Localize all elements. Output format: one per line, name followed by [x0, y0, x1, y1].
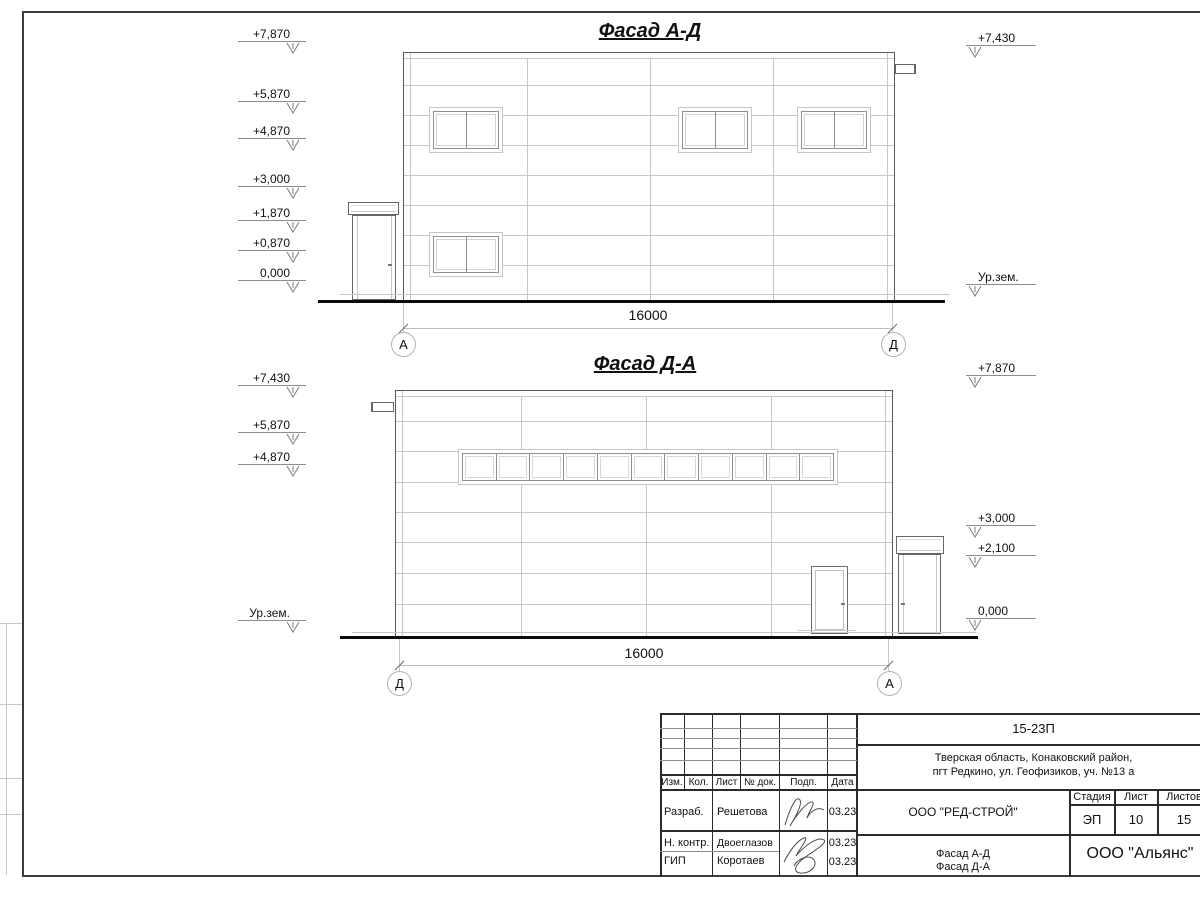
plinth-line [340, 294, 950, 295]
elevation-arrow-icon [286, 621, 300, 633]
window-glass [634, 456, 663, 478]
dimension-value: 16000 [596, 645, 692, 661]
window [429, 107, 503, 153]
window-glass [600, 456, 629, 478]
window-pane [799, 454, 833, 480]
stamp-stage-label: Стадия [1070, 791, 1114, 804]
stamp-sheet-value: 10 [1115, 813, 1157, 826]
dimension-line [403, 328, 893, 329]
stamp-col-ndok: № док. [741, 776, 779, 789]
frame-top [22, 11, 1200, 13]
panel-joint [646, 396, 647, 637]
elevation-value: +5,870 [238, 418, 306, 432]
elevation-value: +1,870 [238, 206, 306, 220]
window [797, 107, 871, 153]
margin-stamp-line [6, 623, 7, 875]
window-frame [433, 111, 499, 149]
siding-line [404, 175, 894, 176]
entrance-door [811, 566, 848, 634]
stamp-line-thin [660, 851, 779, 852]
panel-joint [771, 396, 772, 637]
elevation-arrow-icon [286, 221, 300, 233]
window-pane [732, 454, 766, 480]
stamp-organization: ООО "Альянс" [1070, 847, 1200, 860]
margin-stamp-line [0, 778, 22, 779]
elevation-value: +7,870 [966, 361, 1036, 375]
stamp-line [857, 834, 1200, 836]
stamp-role: Н. контр. [664, 837, 709, 850]
ribbon-window [458, 449, 838, 485]
elevation-value: Ур.зем. [238, 606, 306, 620]
porch-canopy [348, 202, 399, 215]
elevation-value: +3,000 [238, 172, 306, 186]
window-frame [682, 111, 748, 149]
stamp-col-data: Дата [828, 776, 857, 789]
elevation-mark: +3,000 [966, 511, 1036, 538]
stamp-line-thin [660, 760, 857, 761]
elevation-arrow-icon [968, 285, 982, 297]
dimension-value: 16000 [600, 307, 696, 323]
porch [898, 554, 941, 634]
corner-trim [887, 53, 888, 300]
window-frame [433, 236, 499, 273]
corner-trim [410, 53, 411, 300]
axis-bubble-d: Д [387, 671, 412, 696]
window-glass [465, 456, 494, 478]
elevation-mark: +5,870 [238, 87, 306, 114]
stamp-date: 03.23 [828, 837, 857, 850]
window-glass [735, 456, 764, 478]
stamp-col-list: Лист [713, 776, 740, 789]
facade-da-building [395, 390, 893, 638]
window-glass [701, 456, 730, 478]
elevation-mark: 0,000 [966, 604, 1036, 631]
elevation-mark: 0,000 [238, 266, 306, 293]
elevation-value: +4,870 [238, 450, 306, 464]
plinth-line [352, 632, 976, 633]
frame-left [22, 11, 24, 877]
elevation-mark: Ур.зем. [966, 270, 1036, 297]
window-pane [463, 454, 496, 480]
elevation-value: +3,000 [966, 511, 1036, 525]
elevation-arrow-icon [968, 526, 982, 538]
window-glass [566, 456, 595, 478]
stamp-date: 03.23 [828, 856, 857, 869]
window-pane [563, 454, 597, 480]
elevation-mark: +0,870 [238, 236, 306, 263]
stamp-line [660, 713, 1200, 715]
window-pane [496, 454, 530, 480]
stamp-line [1070, 804, 1200, 806]
window-mullion [466, 237, 467, 272]
facade-da-title: Фасад Д-А [535, 353, 755, 376]
window-pane [529, 454, 563, 480]
elevation-mark: +4,870 [238, 450, 306, 477]
elevation-arrow-icon [968, 619, 982, 631]
stamp-address-line2: пгт Редкино, ул. Геофизиков, уч. №13 а [857, 766, 1200, 779]
elevation-arrow-icon [968, 556, 982, 568]
extension-line [399, 639, 400, 673]
roof-pipe [895, 64, 916, 74]
roof-pipe [371, 402, 394, 412]
stamp-line-thin [660, 748, 857, 749]
window-mullion [466, 112, 467, 148]
stamp-drawing-title-2: Фасад Д-А [857, 861, 1069, 874]
panel-joint [650, 58, 651, 300]
margin-stamp-line [0, 623, 22, 624]
stamp-sheet-label: Лист [1115, 791, 1157, 804]
stamp-line-thin [660, 728, 857, 729]
door-handle [901, 603, 905, 605]
window-pane [664, 454, 698, 480]
elevation-value: 0,000 [238, 266, 306, 280]
elevation-arrow-icon [286, 281, 300, 293]
siding-line [396, 421, 892, 422]
porch-canopy [896, 536, 944, 554]
stamp-col-podp: Подп. [780, 776, 827, 789]
corner-trim [885, 391, 886, 637]
porch-canopy-trim [351, 205, 396, 212]
elevation-value: +7,430 [966, 31, 1036, 45]
porch-canopy-trim [899, 539, 941, 551]
elevation-arrow-icon [286, 102, 300, 114]
porch-trim [357, 216, 358, 299]
signature [781, 793, 827, 829]
stamp-address-line1: Тверская область, Конаковский район, [857, 752, 1200, 765]
elevation-value: +5,870 [238, 87, 306, 101]
elevation-mark: +7,430 [966, 31, 1036, 58]
elevation-mark: +7,870 [966, 361, 1036, 388]
elevation-value: +7,430 [238, 371, 306, 385]
elevation-mark: +3,000 [238, 172, 306, 199]
porch-trim [903, 555, 904, 633]
stamp-doc-number: 15-23П [857, 722, 1200, 735]
panel-joint [521, 396, 522, 637]
stamp-role: ГИП [664, 855, 686, 868]
stamp-date: 03.23 [828, 806, 857, 819]
elevation-mark: +4,870 [238, 124, 306, 151]
stamp-line-thin [660, 738, 857, 739]
stamp-role: Разраб. [664, 806, 704, 819]
elevation-arrow-icon [286, 251, 300, 263]
extension-line [888, 639, 889, 673]
elevation-arrow-icon [286, 386, 300, 398]
elevation-value: +4,870 [238, 124, 306, 138]
corner-trim [402, 391, 403, 637]
porch-trim [936, 555, 937, 633]
elevation-mark: +2,100 [966, 541, 1036, 568]
stamp-col-izm: Изм. [660, 776, 684, 789]
window-frame [801, 111, 867, 149]
frame-bottom [22, 875, 1200, 877]
elevation-mark: Ур.зем. [238, 606, 306, 633]
axis-letter: Д [889, 337, 898, 352]
window-pane [597, 454, 631, 480]
siding-line [396, 512, 892, 513]
window-glass [499, 456, 528, 478]
window-mullion [834, 112, 835, 148]
door-leaf [815, 570, 844, 630]
elevation-arrow-icon [286, 465, 300, 477]
stamp-name: Двоеглазов [717, 837, 773, 850]
elevation-value: 0,000 [966, 604, 1036, 618]
parapet-line [404, 58, 894, 59]
facade-ad-building [403, 52, 895, 301]
elevation-arrow-icon [286, 433, 300, 445]
window-pane [698, 454, 732, 480]
window [429, 232, 503, 277]
window-pane [631, 454, 665, 480]
drawing-sheet: Фасад А-Д [0, 0, 1200, 900]
window-glass [769, 456, 798, 478]
elevation-arrow-icon [286, 187, 300, 199]
elevation-arrow-icon [286, 42, 300, 54]
panel-joint [527, 58, 528, 300]
stamp-col-kol: Кол. [685, 776, 712, 789]
stamp-name: Коротаев [717, 855, 765, 868]
margin-stamp-line [0, 814, 22, 815]
panel-joint [773, 58, 774, 300]
window-glass [667, 456, 696, 478]
elevation-mark: +5,870 [238, 418, 306, 445]
stamp-drawing-title-1: Фасад А-Д [857, 848, 1069, 861]
ground-line [318, 300, 945, 303]
stamp-sheets-value: 15 [1158, 813, 1200, 826]
elevation-value: Ур.зем. [966, 270, 1036, 284]
porch-trim [391, 216, 392, 299]
siding-line [404, 205, 894, 206]
axis-bubble-a: А [391, 332, 416, 357]
door-handle [841, 603, 845, 605]
window [678, 107, 752, 153]
stamp-stage-value: ЭП [1070, 813, 1114, 826]
elevation-arrow-icon [286, 139, 300, 151]
elevation-arrow-icon [968, 46, 982, 58]
window-pane [766, 454, 800, 480]
ground-line [340, 636, 978, 639]
door-handle [388, 264, 392, 266]
window-glass [532, 456, 561, 478]
signature [778, 832, 830, 876]
window-glass [802, 456, 831, 478]
axis-bubble-a: А [877, 671, 902, 696]
siding-line [396, 542, 892, 543]
window-mullion [715, 112, 716, 148]
axis-letter: А [885, 676, 894, 691]
elevation-mark: +7,870 [238, 27, 306, 54]
stamp-sheets-label: Листов [1158, 791, 1200, 804]
elevation-mark: +7,430 [238, 371, 306, 398]
dimension-line [399, 665, 889, 666]
axis-bubble-d: Д [881, 332, 906, 357]
axis-letter: А [399, 337, 408, 352]
axis-letter: Д [395, 676, 404, 691]
parapet-line [396, 396, 892, 397]
porch [352, 215, 396, 300]
stamp-name: Решетова [717, 806, 767, 819]
margin-stamp-line [0, 704, 22, 705]
elevation-value: +0,870 [238, 236, 306, 250]
elevation-mark: +1,870 [238, 206, 306, 233]
elevation-value: +2,100 [966, 541, 1036, 555]
elevation-value: +7,870 [238, 27, 306, 41]
stamp-line [857, 744, 1200, 746]
facade-ad-title: Фасад А-Д [540, 20, 760, 43]
door-step [798, 630, 856, 631]
elevation-arrow-icon [968, 376, 982, 388]
siding-line [404, 85, 894, 86]
ribbon-window-frame [462, 453, 834, 481]
stamp-company: ООО "РЕД-СТРОЙ" [857, 806, 1069, 819]
